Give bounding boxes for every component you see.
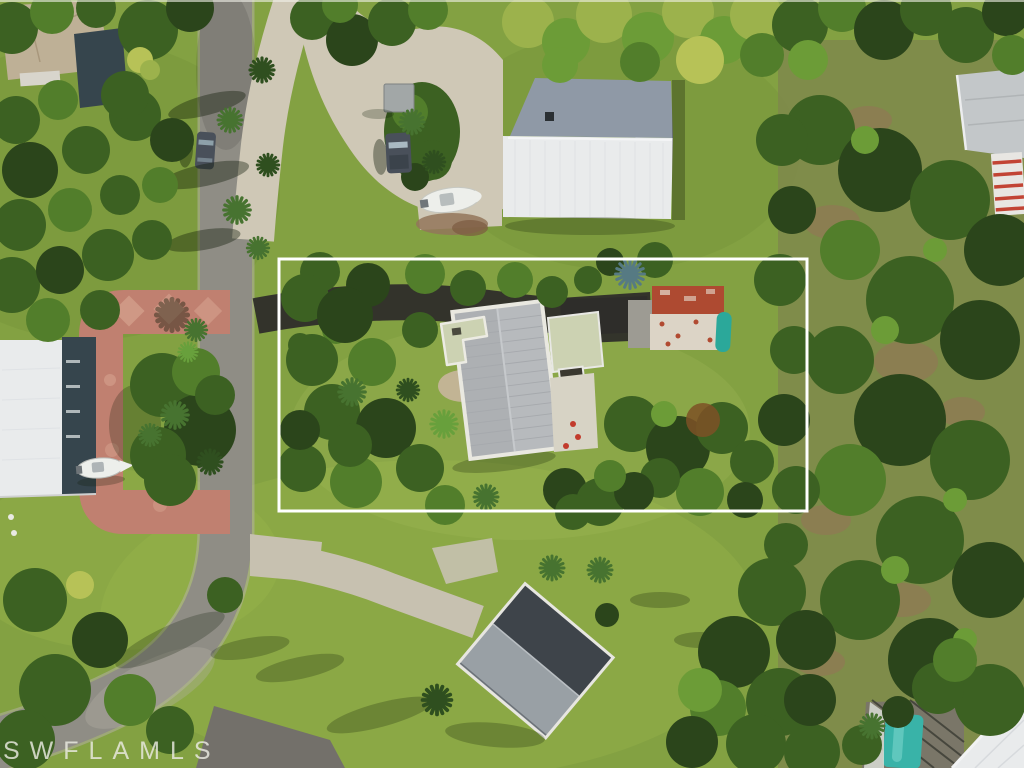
photo-top-border [0, 0, 1024, 2]
aerial-photo: SWFLAMLS [0, 0, 1024, 768]
red-striped-structure [991, 152, 1024, 216]
mls-watermark: SWFLAMLS [3, 737, 221, 766]
aerial-photo-canvas [0, 0, 1024, 768]
rear-patio-slab [550, 373, 598, 452]
kayak [715, 312, 732, 353]
outbuilding [503, 78, 685, 235]
roof-vent [545, 112, 554, 121]
